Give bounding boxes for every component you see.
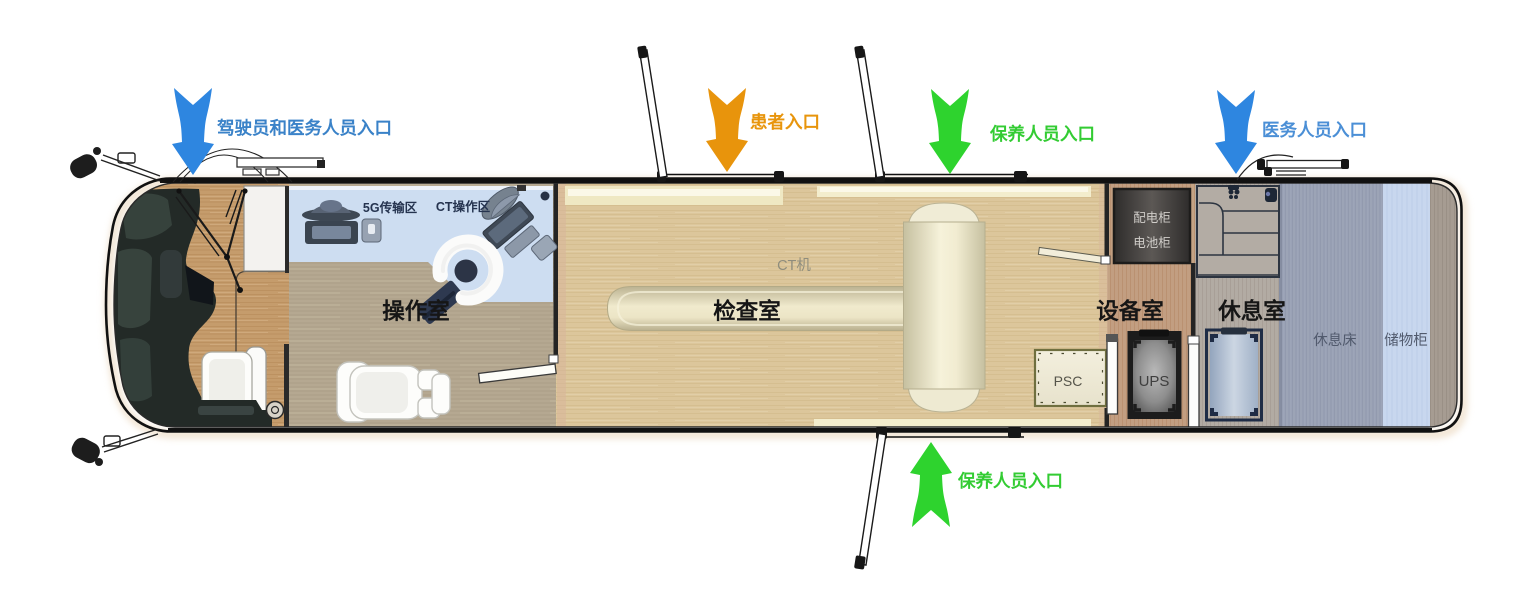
svg-text:操作室: 操作室 (382, 298, 450, 324)
svg-text:5G传输区: 5G传输区 (363, 200, 418, 215)
svg-text:医务人员入口: 医务人员入口 (1262, 120, 1367, 140)
svg-text:保养人员入口: 保养人员入口 (989, 124, 1095, 144)
svg-text:检查室: 检查室 (713, 298, 781, 324)
svg-text:UPS: UPS (1139, 373, 1170, 390)
svg-text:休息床: 休息床 (1313, 332, 1357, 349)
svg-text:驾驶员和医务人员入口: 驾驶员和医务人员入口 (217, 118, 392, 138)
svg-text:保养人员入口: 保养人员入口 (957, 471, 1063, 491)
svg-text:配电柜: 配电柜 (1133, 211, 1171, 225)
svg-text:设备室: 设备室 (1096, 298, 1164, 324)
svg-text:CT机: CT机 (777, 257, 811, 274)
svg-text:患者入口: 患者入口 (750, 112, 820, 132)
svg-text:储物柜: 储物柜 (1384, 332, 1428, 349)
svg-text:电池柜: 电池柜 (1133, 236, 1171, 250)
svg-text:PSC: PSC (1054, 373, 1083, 389)
svg-text:休息室: 休息室 (1217, 298, 1286, 324)
svg-text:CT操作区: CT操作区 (436, 199, 491, 214)
